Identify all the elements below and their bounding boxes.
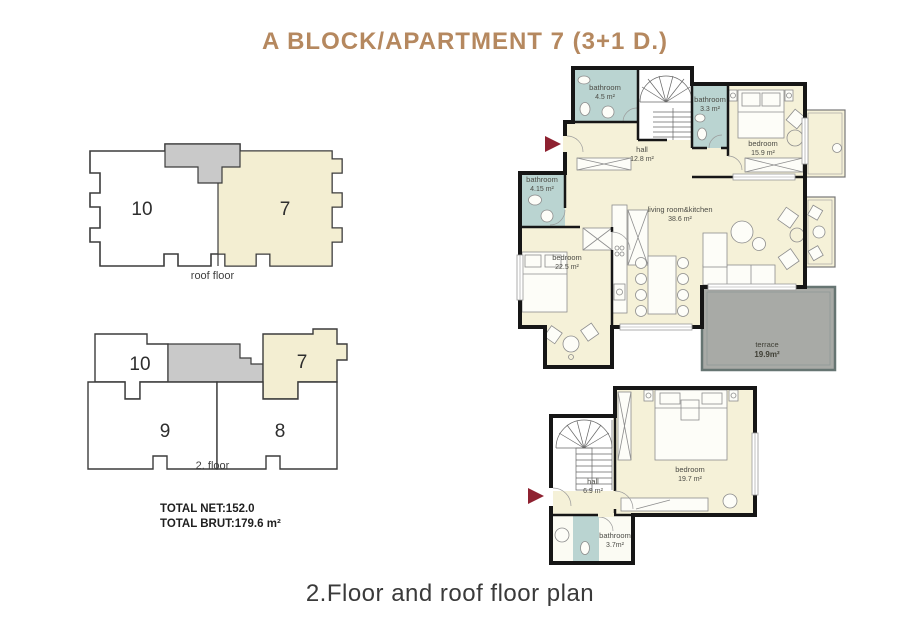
total-net: TOTAL NET:152.0: [160, 502, 281, 517]
label-bedroom-lower: bedroom: [675, 465, 705, 474]
lower-floor-plan: hall 6.9 m² bedroom 19.7 m² bathroom 3.7…: [518, 378, 803, 583]
key-roof-unit-7: 7: [280, 199, 291, 220]
key2-unit-8: 8: [275, 421, 286, 442]
svg-text:15.9 m²: 15.9 m²: [751, 150, 775, 157]
plan-caption: 2.Floor and roof floor plan: [0, 580, 900, 608]
svg-text:4.5 m²: 4.5 m²: [595, 94, 616, 101]
svg-text:3.3 m²: 3.3 m²: [700, 106, 721, 113]
svg-text:19.9m²: 19.9m²: [754, 350, 780, 359]
total-brut: TOTAL BRUT:179.6 m²: [160, 517, 281, 532]
label-terrace: terrace: [755, 340, 778, 349]
label-bathroom-lower: bathroom: [599, 531, 631, 540]
label-bedroom1: bedroom: [748, 139, 778, 148]
upper-floor-plan: bathroom 4.5 m² bathroom 3.3 m² bedroom …: [495, 60, 900, 390]
entry-arrow-lower: [528, 488, 544, 504]
key-plan-second: 10 7 9 8: [70, 322, 355, 474]
key2-common-area: [168, 344, 263, 382]
svg-text:4.15 m²: 4.15 m²: [530, 186, 554, 193]
key-roof-unit-10: 10: [131, 199, 152, 220]
svg-text:3.7m²: 3.7m²: [606, 542, 625, 549]
key2-unit-9: 9: [160, 421, 171, 442]
key2-unit9: [88, 382, 217, 469]
label-bathroom3: bathroom: [526, 175, 558, 184]
svg-text:6.9 m²: 6.9 m²: [583, 488, 604, 495]
label-living: living room&kitchen: [647, 205, 712, 214]
key-plan-roof: 10 7: [70, 133, 355, 283]
stairwell-floor: [638, 68, 692, 140]
bed-bedroom1: [729, 90, 793, 138]
key2-unit-7: 7: [297, 352, 308, 373]
svg-text:12.8 m²: 12.8 m²: [630, 156, 654, 163]
label-bathroom2: bathroom: [694, 95, 726, 104]
hall-wardrobe: [577, 158, 631, 170]
key2-unit-10: 10: [129, 354, 150, 375]
svg-text:19.7 m²: 19.7 m²: [678, 476, 702, 483]
svg-text:38.6 m²: 38.6 m²: [668, 216, 692, 223]
page-title: A BLOCK/APARTMENT 7 (3+1 D.): [0, 28, 900, 56]
label-hall: hall: [636, 145, 648, 154]
bedroom-balcony: [805, 110, 845, 177]
stairwell-floor-lower: [553, 418, 613, 491]
wardrobe-lower: [618, 392, 631, 460]
key-roof-label: roof floor: [70, 270, 355, 282]
floor-plan-page: A BLOCK/APARTMENT 7 (3+1 D.) 10 7 roof f…: [0, 0, 900, 621]
windows-lower: [752, 433, 758, 495]
entry-arrow-upper: [545, 136, 561, 152]
bed-lower: [644, 390, 738, 460]
label-bedroom2: bedroom: [552, 253, 582, 262]
label-bathroom1: bathroom: [589, 83, 621, 92]
dresser-bedroom1: [745, 158, 803, 172]
bathroom-blue-band: [573, 515, 599, 563]
label-hall-lower: hall: [587, 477, 599, 486]
totals-block: TOTAL NET:152.0 TOTAL BRUT:179.6 m²: [160, 502, 281, 532]
svg-text:22.5 m²: 22.5 m²: [555, 264, 579, 271]
wardrobe-bedroom2: [583, 228, 612, 250]
key-second-label: 2. floor: [70, 460, 355, 472]
